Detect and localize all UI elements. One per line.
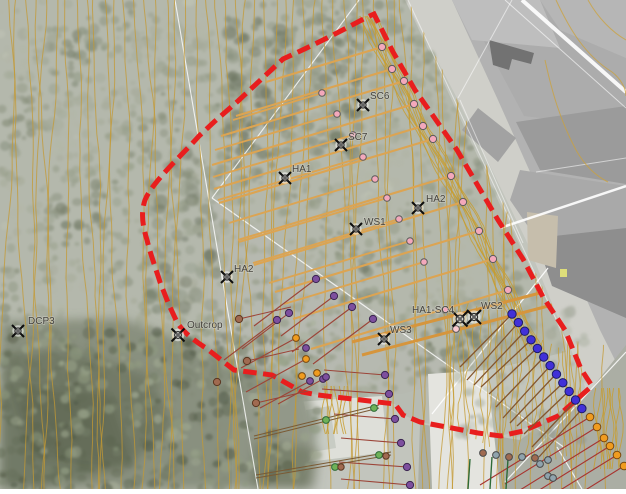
- svg-text:WS1: WS1: [364, 217, 386, 228]
- svg-text:WS2: WS2: [481, 301, 503, 312]
- svg-text:HA1: HA1: [292, 164, 312, 175]
- svg-text:SC7: SC7: [348, 132, 368, 143]
- svg-text:HA1-SC4: HA1-SC4: [412, 305, 455, 316]
- svg-text:HA2: HA2: [234, 264, 254, 275]
- svg-text:DCP3: DCP3: [28, 316, 55, 327]
- svg-text:Outcrop: Outcrop: [187, 320, 223, 331]
- svg-text:SC6: SC6: [370, 91, 390, 102]
- svg-text:HA2: HA2: [426, 194, 446, 205]
- svg-text:WS3: WS3: [390, 325, 412, 336]
